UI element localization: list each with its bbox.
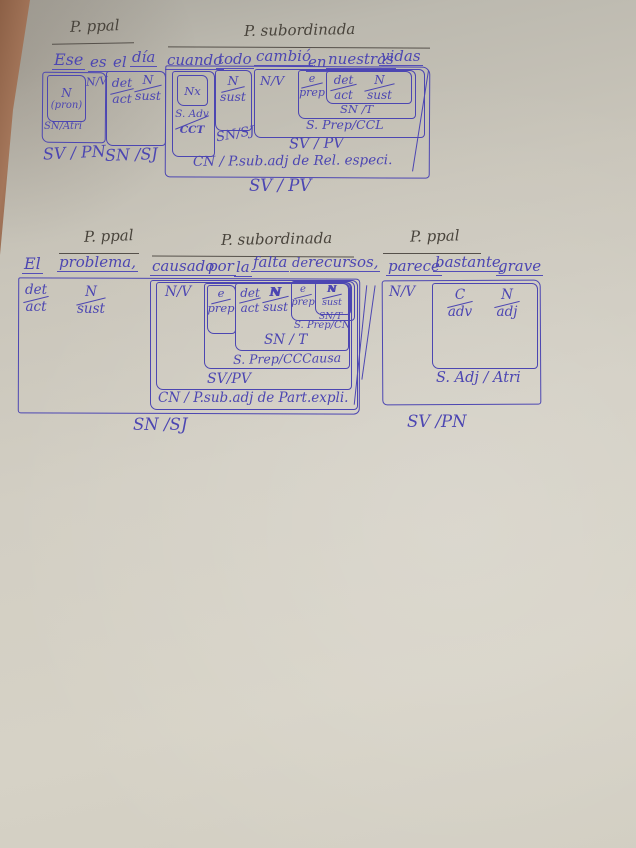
annotation-bottom: adj	[497, 306, 518, 320]
annotation-top: N	[270, 286, 281, 298]
annotation-top: N	[328, 285, 337, 295]
annotation-de-e-prep: eprep	[294, 285, 312, 308]
word-es: es	[88, 55, 109, 72]
annotation-en-e-prep: eprep	[301, 73, 323, 98]
annotation-cuando-sadv-cct: S. AdvCCT	[174, 109, 210, 135]
annotation-top: e	[218, 288, 225, 300]
photo-of-handwritten-syntax-diagrams: P. ppal P. subordinada Ese es el día cua…	[0, 0, 636, 848]
annotation-por-e-prep: eprep	[211, 288, 231, 314]
label-sn-sujeto-2: SN /SJ	[133, 416, 187, 433]
stray-stroke	[361, 285, 375, 379]
word-el: el	[111, 55, 129, 72]
annotation-bottom: sust	[322, 298, 342, 308]
label-sv-pv-2: SV/PV	[207, 372, 251, 387]
label-sn-termino-1: SN /T	[340, 103, 373, 115]
annotation-top: e	[309, 73, 316, 84]
table-edge	[0, 0, 34, 260]
annotation-bottom: prep	[299, 87, 325, 98]
word-ese: Ese	[52, 52, 85, 70]
annotation-bottom: sust	[367, 89, 392, 101]
label-cn-psub-adj-part: CN / P.sub.adj de Part.expli.	[158, 391, 348, 405]
annotation-bastante-c-adv: Cadv	[447, 289, 473, 319]
label-sv-pv-inner: SV / PV	[289, 137, 344, 153]
clause-underline	[52, 42, 134, 44]
annotation-vidas-n-sust: Nsust	[364, 74, 395, 101]
label-sadj-atributo: S. Adj / Atri	[436, 371, 521, 386]
annotation-bottom: adv	[448, 306, 472, 320]
box-nexo: Nx	[177, 75, 208, 106]
annotation-top: N	[85, 286, 97, 300]
word-dia: día	[130, 50, 157, 67]
label-sprep-cccausa: S. Prep/CCCausa	[233, 351, 341, 366]
word-recursos: recursos,	[306, 255, 380, 272]
annotation-ese-sub: (pron)	[51, 100, 82, 111]
annotation-bottom: act	[241, 302, 260, 314]
annotation-bottom: act	[112, 93, 131, 106]
annotation-top: N	[228, 75, 239, 88]
annotation-es-nv: N/V	[86, 75, 108, 88]
label-sprep-ccl: S. Prep/CCL	[306, 118, 384, 131]
annotation-bottom: sust	[263, 301, 288, 313]
annotation-bottom: sust	[135, 90, 161, 103]
label-cn-psub-adj-rel: CN / P.sub.adj de Rel. especi.	[193, 153, 392, 169]
annotation-bottom: act	[334, 89, 353, 101]
clause-label-subordinada-2: P. subordinada	[221, 231, 333, 249]
label-sv-pn: SV / PN	[43, 143, 107, 163]
annotation-top: N	[374, 74, 385, 86]
annotation-bottom: sust	[220, 91, 246, 104]
annotation-el-det-act: detact	[110, 77, 134, 105]
annotation-top: det	[25, 284, 47, 298]
annotation-bottom: sust	[77, 303, 105, 317]
clause-label-principal-1: P. ppal	[70, 18, 120, 35]
word-cambio: cambió	[254, 49, 313, 66]
label-sn-termino-2: SN / T	[264, 333, 307, 347]
word-problema: problema,	[57, 255, 138, 272]
annotation-problema-n-sust: Nsust	[76, 286, 106, 316]
word-vidas: vidas	[379, 49, 423, 66]
annotation-top: det	[112, 77, 132, 90]
annotation-recursos-n-sust: Nsust	[322, 285, 342, 307]
annotation-causado-nv: N/V	[165, 285, 191, 299]
word-grave: grave	[496, 259, 543, 276]
annotation-todo-n-sust: Nsust	[221, 75, 245, 103]
label-sn-atributo: SN/Atri	[44, 122, 82, 133]
annotation-el2-det-act: detact	[23, 284, 49, 314]
annotation-bottom: prep	[291, 298, 315, 308]
annotation-ese-cat: N	[61, 86, 72, 100]
annotation-parece-nv: N/V	[389, 285, 415, 299]
annotation-falta-n-sust: Nsust	[262, 286, 289, 313]
annotation-nuestras-det-act: detact	[330, 74, 357, 101]
clause-label-subordinada-1: P. subordinada	[244, 22, 356, 40]
word-por: por	[206, 259, 236, 276]
word-la: la	[234, 260, 252, 277]
annotation-top: C	[455, 289, 465, 303]
annotation-bottom: act	[25, 301, 46, 315]
annotation-cambio-nv: N/V	[260, 74, 284, 87]
annotation-la-det-act: detact	[239, 287, 261, 314]
annotation-cuando-nx: Nx	[184, 84, 201, 98]
annotation-grave-n-adj: Nadj	[494, 289, 520, 319]
annotation-top: e	[300, 285, 306, 295]
label-sn-sujeto-1: SN /SJ	[105, 146, 158, 165]
box-ese-pron: N (pron)	[47, 75, 86, 122]
clause-label-principal-2a: P. ppal	[84, 228, 134, 245]
word-bastante: bastante	[433, 255, 503, 272]
annotation-top: N	[143, 74, 154, 87]
label-sv-pn-2: SV /PN	[407, 413, 467, 430]
clause-label-principal-2b: P. ppal	[410, 228, 460, 245]
label-sv-pv-outer: SV / PV	[249, 177, 311, 194]
annotation-dia-n-sust: Nsust	[134, 74, 162, 102]
word-el-2: El	[22, 256, 43, 274]
word-falta: falta	[251, 255, 289, 272]
annotation-top: N	[501, 289, 513, 303]
label-sprep-cn: S. Prep/CN	[294, 321, 350, 332]
